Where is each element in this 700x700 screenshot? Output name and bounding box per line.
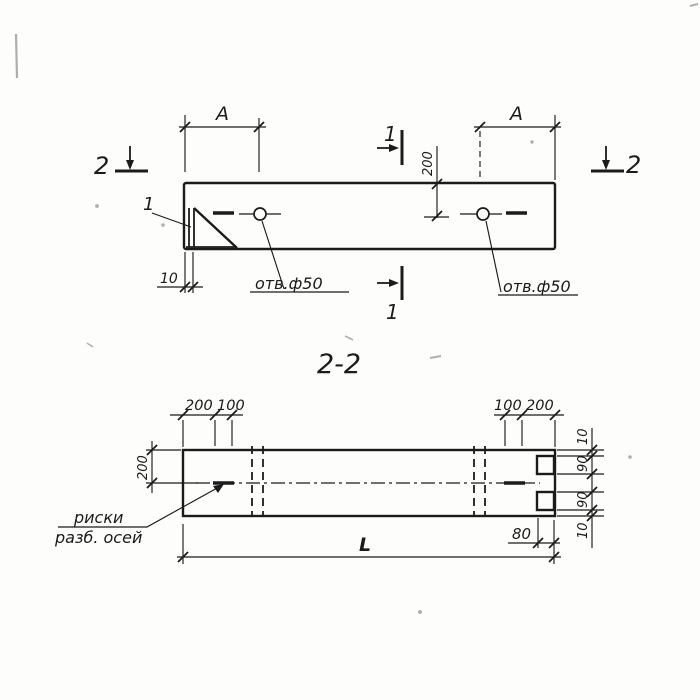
dim-right-10-bottom-text: 10 xyxy=(576,522,591,539)
dim-200-section: 200 xyxy=(136,441,198,493)
dim-a-left: A xyxy=(179,103,266,172)
axes-note-line2: разб. осей xyxy=(54,528,142,547)
notch-lower xyxy=(537,492,554,510)
leader-line xyxy=(486,221,501,292)
drawing-sheet: 1 A A 200 xyxy=(0,0,700,700)
dim-a-right-text: A xyxy=(508,103,523,125)
hole-label-left: отв.ф50 xyxy=(250,221,349,293)
axes-note-line1: риски xyxy=(73,508,123,527)
leader-arrow-icon xyxy=(213,484,224,493)
plan-view: 1 A A 200 xyxy=(94,103,641,324)
dim-80-text: 80 xyxy=(512,525,531,543)
section-mark-1-top-label: 1 xyxy=(384,122,397,146)
dim-100-top-right-text: 100 xyxy=(494,398,522,414)
dim-100-top-left-text: 100 xyxy=(217,398,245,414)
section-mark-1-bottom: 1 xyxy=(377,266,402,324)
hole-left xyxy=(213,208,281,220)
dims-right-chain: 10 90 90 10 xyxy=(557,428,604,548)
dim-200-top-left-text: 200 xyxy=(185,398,213,414)
dim-200-section-text: 200 xyxy=(136,455,151,480)
section-mark-2-right: 2 xyxy=(591,146,641,179)
hidden-hole-left xyxy=(252,446,263,516)
dim-10-plan: 10 xyxy=(157,252,203,293)
hole-label-right-text: отв.ф50 xyxy=(503,277,571,296)
section-mark-1-bottom-label: 1 xyxy=(386,300,399,324)
plan-beam-outline xyxy=(184,183,555,249)
dim-200-plan-text: 200 xyxy=(421,151,436,176)
section-arrow-right-icon xyxy=(389,279,399,287)
section-mark-1-top: 1 xyxy=(377,122,402,165)
dim-length-l: L xyxy=(177,520,561,564)
dim-a-right: A xyxy=(474,103,561,180)
dim-right-90-lower-text: 90 xyxy=(576,491,591,508)
dims-top-right: 100 200 xyxy=(494,398,564,447)
section-mark-2-left: 2 xyxy=(94,146,148,180)
section-arrow-down-icon xyxy=(126,160,134,170)
section-title: 2-2 xyxy=(317,349,361,380)
dim-right-90-upper-text: 90 xyxy=(576,455,591,472)
hole-circle xyxy=(477,208,489,220)
hole-right xyxy=(460,208,527,220)
dim-200-top-right-text: 200 xyxy=(526,398,554,414)
notch-upper xyxy=(537,456,554,474)
section-mark-2-left-label: 2 xyxy=(94,152,109,180)
section-view: 200 200 100 100 200 xyxy=(54,398,604,564)
hole-label-left-text: отв.ф50 xyxy=(255,274,323,293)
section-arrow-down-icon xyxy=(602,160,610,170)
drawing-canvas: 1 A A 200 xyxy=(0,0,700,700)
dims-top-left: 200 100 xyxy=(170,398,245,447)
hole-label-right: отв.ф50 xyxy=(486,221,578,296)
callout-1-label: 1 xyxy=(143,194,154,215)
section-mark-2-right-label: 2 xyxy=(626,151,641,179)
hole-circle xyxy=(254,208,266,220)
dim-10-plan-text: 10 xyxy=(160,271,178,287)
dim-length-text: L xyxy=(359,534,371,556)
dim-a-left-text: A xyxy=(214,103,229,125)
dim-right-10-top-text: 10 xyxy=(576,428,591,445)
hidden-hole-right xyxy=(474,446,485,516)
dim-80: 80 xyxy=(508,518,560,548)
